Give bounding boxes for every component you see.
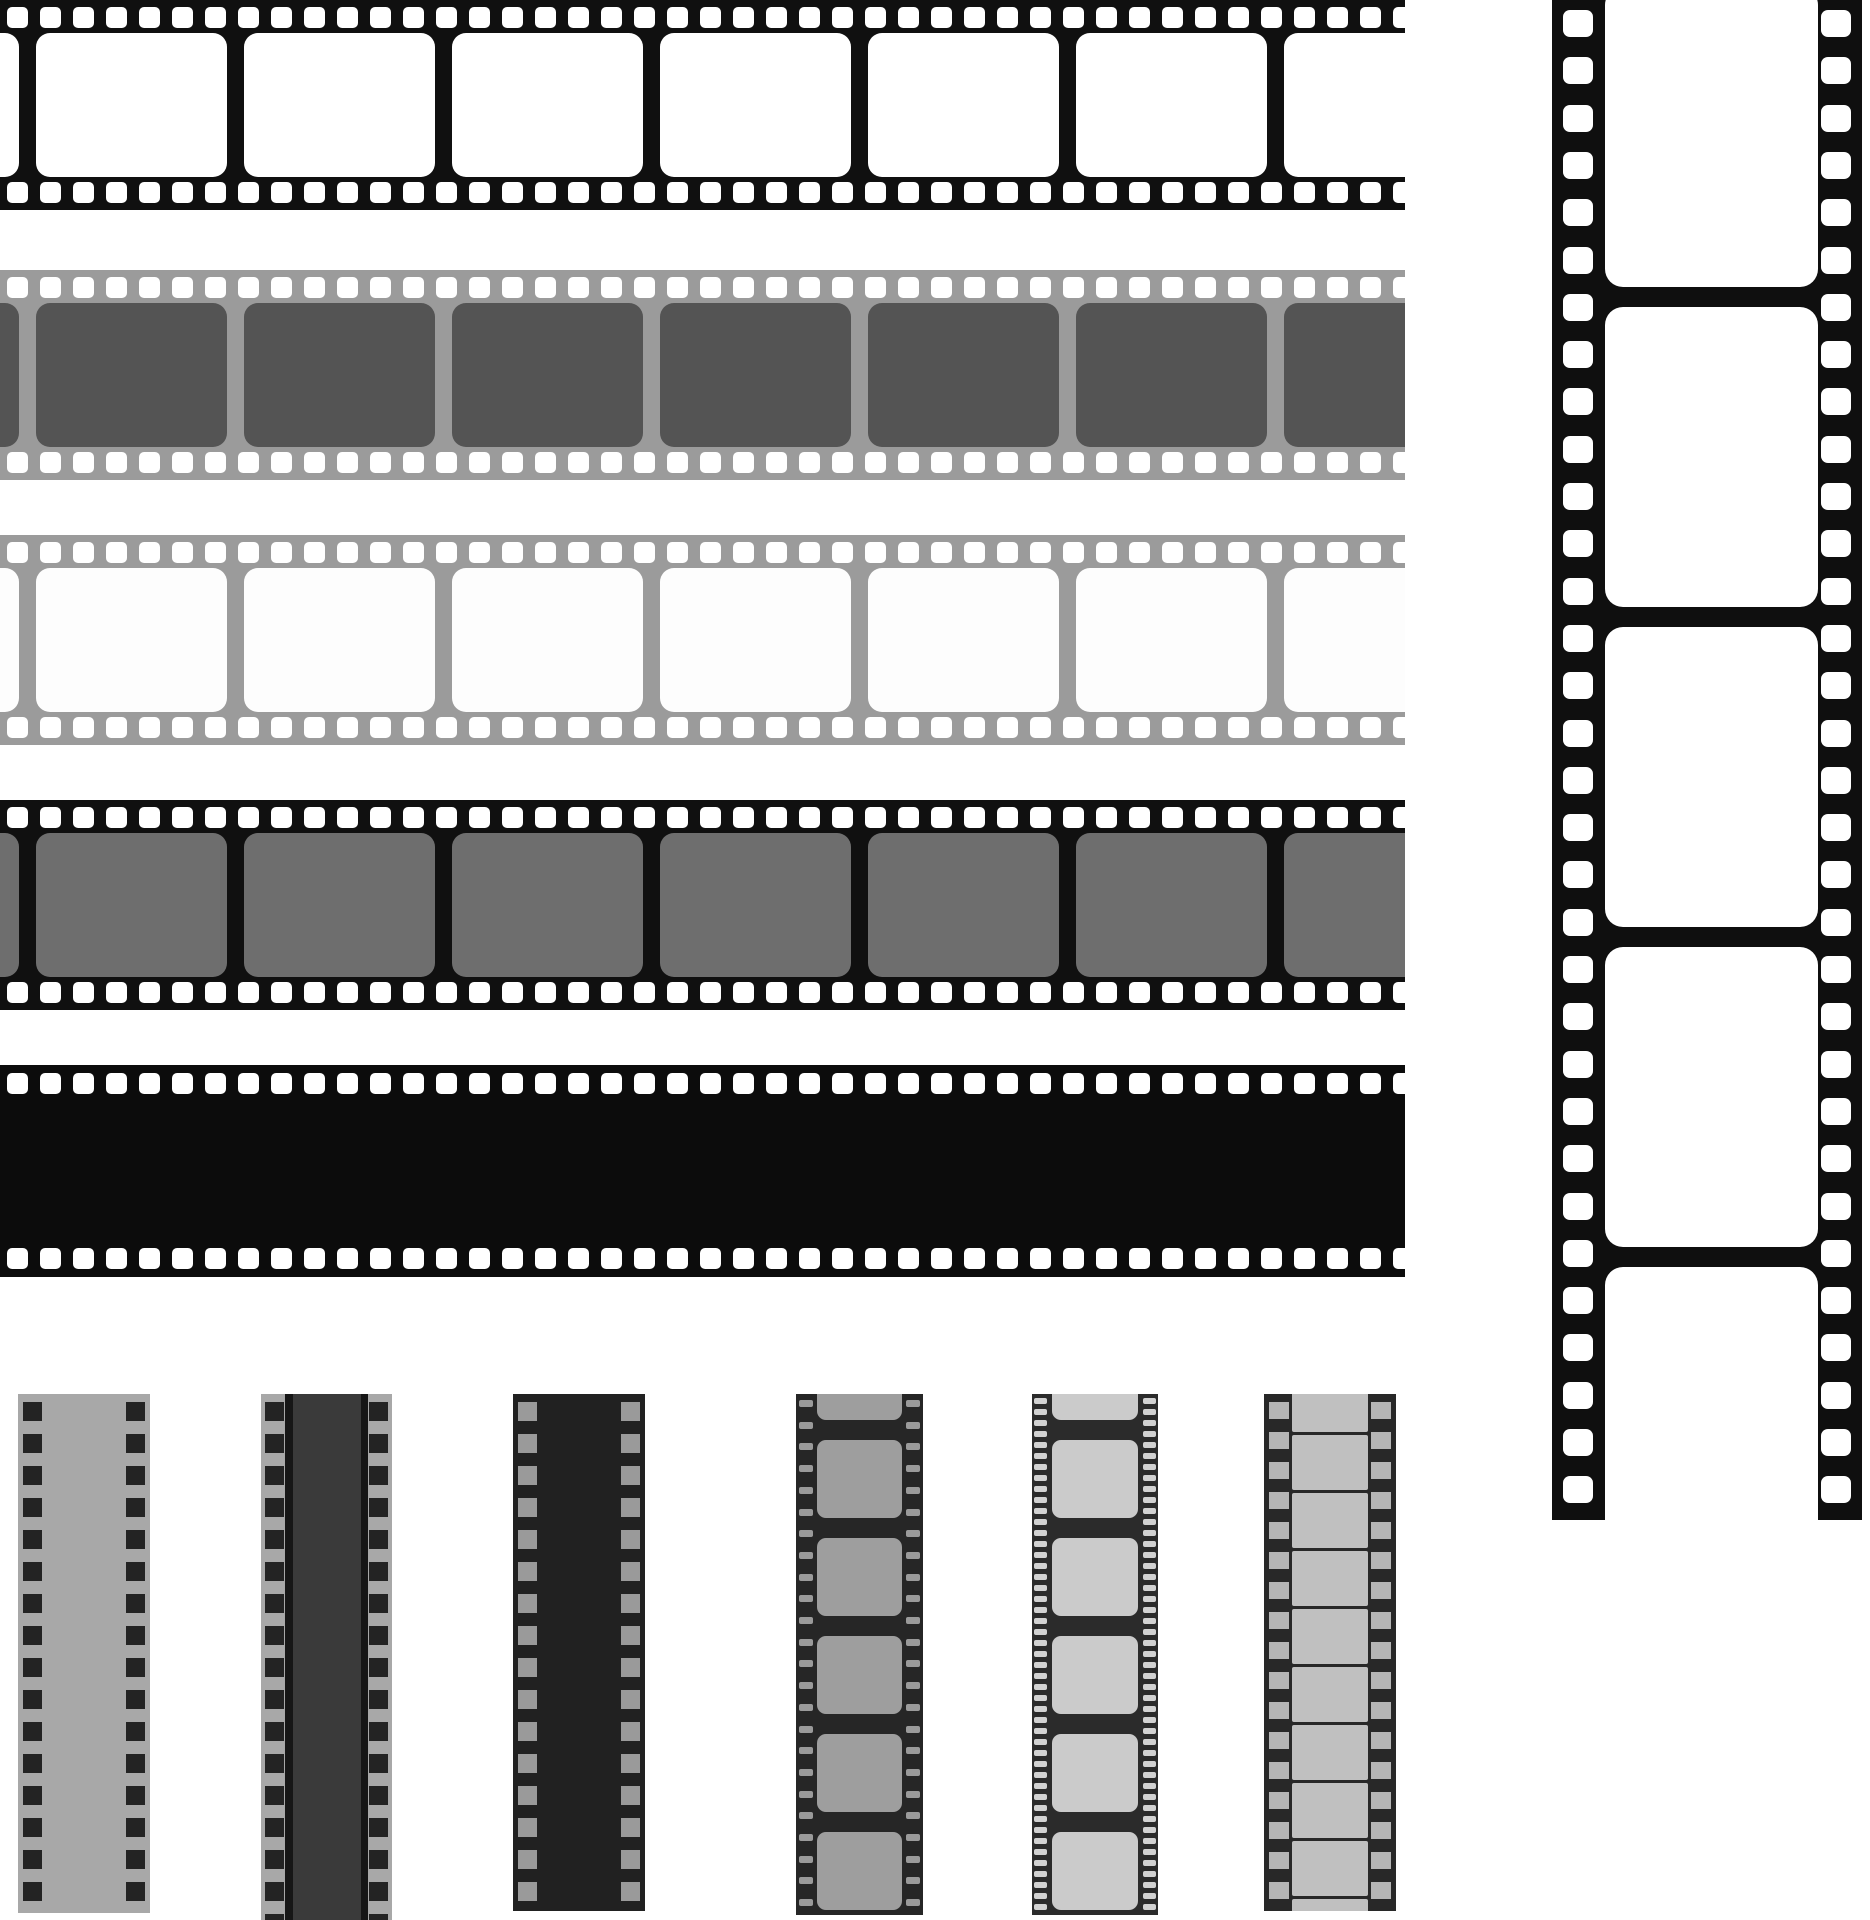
film-perforation: [1294, 1248, 1315, 1269]
film-perforation: [1371, 1492, 1391, 1509]
film-perforation: [1096, 452, 1117, 473]
film-perforation: [1143, 1651, 1156, 1657]
film-perforation: [1563, 530, 1593, 557]
film-perforation: [667, 982, 688, 1003]
film-perforation: [1294, 542, 1315, 563]
film-perforation: [535, 1248, 556, 1269]
film-perforation: [1821, 578, 1851, 605]
film-perforation: [238, 542, 259, 563]
film-perforation: [369, 1658, 388, 1677]
film-perforation: [1034, 1629, 1047, 1635]
film-perforation: [906, 1726, 920, 1733]
film-perforation: [1143, 1662, 1156, 1668]
film-perforation: [1063, 452, 1084, 473]
film-perforation: [502, 982, 523, 1003]
film-perforation: [1034, 1497, 1047, 1503]
film-perforation: [1563, 1476, 1593, 1503]
film-perforation: [1096, 982, 1117, 1003]
film-perforation: [469, 7, 490, 28]
film-perforation: [601, 807, 622, 828]
film-perforation: [1162, 452, 1183, 473]
film-perforation: [265, 1786, 284, 1805]
film-strip-small-gray-solid: [18, 1394, 150, 1913]
film-perforation: [172, 452, 193, 473]
film-perforation: [1162, 807, 1183, 828]
film-perforation: [621, 1786, 640, 1805]
film-frame: [1605, 627, 1818, 927]
film-perforation: [1030, 1073, 1051, 1094]
film-perforation: [1129, 542, 1150, 563]
film-perforation: [106, 182, 127, 203]
film-perforation: [1821, 861, 1851, 888]
film-frame: [868, 833, 1059, 977]
film-perforation: [1030, 182, 1051, 203]
film-perforation: [931, 182, 952, 203]
film-perforation: [304, 1073, 325, 1094]
film-perforation: [1034, 1607, 1047, 1613]
film-strip-small-gray-dark-band: [261, 1394, 392, 1920]
film-perforation: [799, 452, 820, 473]
film-perforation: [1371, 1612, 1391, 1629]
film-perforation: [172, 277, 193, 298]
film-perforation: [621, 1466, 640, 1485]
film-perforation: [1034, 1464, 1047, 1470]
film-perforation: [1129, 1073, 1150, 1094]
film-perforation: [518, 1882, 537, 1901]
film-perforation: [1034, 1816, 1047, 1822]
film-perforation: [1143, 1882, 1156, 1888]
film-perforation: [205, 982, 226, 1003]
film-perforation: [1371, 1432, 1391, 1449]
film-perforation: [1371, 1672, 1391, 1689]
film-perforation: [799, 7, 820, 28]
film-perforation: [1563, 1287, 1593, 1314]
film-perforation: [1096, 542, 1117, 563]
film-perforation: [1228, 1073, 1249, 1094]
film-perforation: [370, 807, 391, 828]
film-perforation: [1143, 1508, 1156, 1514]
film-perforation: [601, 7, 622, 28]
film-perforation: [40, 807, 61, 828]
film-perforation: [832, 277, 853, 298]
film-perforation: [126, 1530, 145, 1549]
film-perforation: [568, 542, 589, 563]
film-perforation: [1034, 1596, 1047, 1602]
film-perforation: [7, 182, 28, 203]
film-perforation: [906, 1682, 920, 1689]
film-perforation: [634, 982, 655, 1003]
film-perforation: [832, 807, 853, 828]
film-perforation: [621, 1658, 640, 1677]
film-perforation: [1063, 542, 1084, 563]
film-perforation: [964, 542, 985, 563]
film-perforation: [898, 182, 919, 203]
film-perforation: [906, 1617, 920, 1624]
film-perforation: [733, 982, 754, 1003]
film-perforation: [469, 182, 490, 203]
film-perforation: [1261, 1073, 1282, 1094]
film-perforation: [238, 1248, 259, 1269]
film-perforation: [733, 7, 754, 28]
film-perforation: [799, 1812, 813, 1819]
film-perforation: [1821, 436, 1851, 463]
film-perforation: [1143, 1431, 1156, 1437]
film-strips-illustration: [0, 0, 1870, 1920]
film-perforation: [502, 182, 523, 203]
film-frame: [1076, 33, 1267, 177]
film-perforation: [898, 1073, 919, 1094]
film-frame: [0, 568, 19, 712]
film-perforation: [1162, 1073, 1183, 1094]
film-perforation: [271, 182, 292, 203]
film-perforation: [1034, 1442, 1047, 1448]
film-perforation: [271, 452, 292, 473]
film-perforation: [906, 1747, 920, 1754]
film-perforation: [1371, 1462, 1391, 1479]
film-perforation: [1371, 1642, 1391, 1659]
film-perforation: [370, 542, 391, 563]
film-perforation: [1034, 1574, 1047, 1580]
film-perforation: [304, 182, 325, 203]
film-perforation: [1228, 542, 1249, 563]
film-perforation: [265, 1882, 284, 1901]
film-perforation: [370, 982, 391, 1003]
film-perforation: [906, 1791, 920, 1798]
film-perforation: [997, 542, 1018, 563]
film-perforation: [403, 717, 424, 738]
film-perforation: [832, 1248, 853, 1269]
film-perforation: [139, 7, 160, 28]
film-perforation: [1034, 1871, 1047, 1877]
film-perforation: [1327, 182, 1348, 203]
film-frame: [1076, 303, 1267, 447]
film-perforation: [1162, 542, 1183, 563]
film-perforation: [271, 807, 292, 828]
film-perforation: [126, 1722, 145, 1741]
film-perforation: [1228, 277, 1249, 298]
film-perforation: [1143, 1805, 1156, 1811]
film-perforation: [964, 7, 985, 28]
film-frame: [660, 568, 851, 712]
film-perforation: [126, 1594, 145, 1613]
film-frame: [1052, 1538, 1138, 1616]
film-frame: [36, 833, 227, 977]
film-perforation: [799, 1530, 813, 1537]
film-center-band: [361, 1394, 368, 1920]
film-perforation: [1143, 1640, 1156, 1646]
film-frame: [1292, 1394, 1368, 1432]
film-perforation: [7, 1248, 28, 1269]
film-perforation: [1129, 717, 1150, 738]
film-perforation: [337, 1248, 358, 1269]
film-perforation: [601, 1248, 622, 1269]
film-perforation: [436, 277, 457, 298]
film-perforation: [906, 1899, 920, 1906]
film-strip-horizontal-black-white-frames: [0, 0, 1405, 210]
film-perforation: [518, 1498, 537, 1517]
film-perforation: [238, 277, 259, 298]
film-perforation: [832, 982, 853, 1003]
film-perforation: [1034, 1695, 1047, 1701]
film-perforation: [436, 542, 457, 563]
film-perforation: [700, 982, 721, 1003]
film-perforation: [370, 452, 391, 473]
film-perforation: [1063, 1248, 1084, 1269]
film-perforation: [7, 982, 28, 1003]
film-perforation: [139, 452, 160, 473]
film-perforation: [518, 1594, 537, 1613]
film-perforation: [205, 1073, 226, 1094]
film-perforation: [1563, 1382, 1593, 1409]
film-perforation: [667, 717, 688, 738]
film-perforation: [1143, 1871, 1156, 1877]
film-frame: [0, 833, 19, 977]
film-frame: [868, 568, 1059, 712]
film-perforation: [601, 277, 622, 298]
film-perforation: [502, 1073, 523, 1094]
film-perforation: [436, 182, 457, 203]
film-perforation: [1034, 1805, 1047, 1811]
film-frame: [1292, 1783, 1368, 1838]
film-frame: [1292, 1435, 1368, 1490]
film-frame: [1292, 1841, 1368, 1896]
film-perforation: [906, 1834, 920, 1841]
film-perforation: [1129, 982, 1150, 1003]
film-perforation: [1563, 1098, 1593, 1125]
film-perforation: [832, 7, 853, 28]
film-perforation: [205, 182, 226, 203]
film-perforation: [799, 1552, 813, 1559]
film-perforation: [1143, 1772, 1156, 1778]
film-perforation: [23, 1530, 42, 1549]
film-perforation: [518, 1530, 537, 1549]
film-perforation: [1393, 277, 1405, 298]
film-perforation: [1143, 1827, 1156, 1833]
film-frame: [1292, 1551, 1368, 1606]
film-perforation: [370, 1248, 391, 1269]
film-frame: [817, 1734, 902, 1812]
film-perforation: [1143, 1860, 1156, 1866]
film-perforation: [1129, 1248, 1150, 1269]
film-perforation: [601, 452, 622, 473]
film-perforation: [23, 1658, 42, 1677]
film-perforation: [1371, 1882, 1391, 1899]
film-perforation: [1821, 1051, 1851, 1078]
film-perforation: [172, 7, 193, 28]
film-perforation: [997, 982, 1018, 1003]
film-perforation: [1327, 717, 1348, 738]
film-perforation: [1034, 1409, 1047, 1415]
film-perforation: [1269, 1702, 1289, 1719]
film-perforation: [1261, 182, 1282, 203]
film-perforation: [139, 277, 160, 298]
film-perforation: [1063, 7, 1084, 28]
film-frame: [1284, 33, 1405, 177]
film-perforation: [403, 1073, 424, 1094]
film-perforation: [1143, 1684, 1156, 1690]
film-perforation: [898, 717, 919, 738]
film-frame: [1076, 568, 1267, 712]
film-perforation: [369, 1818, 388, 1837]
film-perforation: [369, 1722, 388, 1741]
film-perforation: [997, 277, 1018, 298]
film-perforation: [799, 1443, 813, 1450]
film-perforation: [1327, 7, 1348, 28]
film-perforation: [1261, 452, 1282, 473]
film-perforation: [23, 1818, 42, 1837]
film-perforation: [1821, 1145, 1851, 1172]
film-perforation: [265, 1626, 284, 1645]
film-frame: [1284, 568, 1405, 712]
film-perforation: [23, 1690, 42, 1709]
film-perforation: [271, 7, 292, 28]
film-perforation: [634, 452, 655, 473]
film-perforation: [369, 1594, 388, 1613]
film-frame: [1052, 1832, 1138, 1910]
film-perforation: [667, 452, 688, 473]
film-perforation: [337, 982, 358, 1003]
film-perforation: [172, 717, 193, 738]
film-perforation: [1096, 182, 1117, 203]
film-perforation: [1030, 542, 1051, 563]
film-perforation: [403, 982, 424, 1003]
film-perforation: [1821, 720, 1851, 747]
film-perforation: [23, 1402, 42, 1421]
film-perforation: [436, 807, 457, 828]
film-perforation: [634, 277, 655, 298]
film-perforation: [1393, 542, 1405, 563]
film-perforation: [931, 982, 952, 1003]
film-perforation: [73, 542, 94, 563]
film-perforation: [518, 1658, 537, 1677]
film-perforation: [1563, 1240, 1593, 1267]
film-perforation: [502, 7, 523, 28]
film-perforation: [634, 717, 655, 738]
film-perforation: [1563, 814, 1593, 841]
film-perforation: [733, 277, 754, 298]
film-frame: [452, 833, 643, 977]
film-perforation: [106, 7, 127, 28]
film-perforation: [436, 7, 457, 28]
film-perforation: [799, 1726, 813, 1733]
film-perforation: [1228, 807, 1249, 828]
film-frame: [36, 568, 227, 712]
film-perforation: [1821, 483, 1851, 510]
film-perforation: [40, 982, 61, 1003]
film-perforation: [337, 182, 358, 203]
film-perforation: [265, 1402, 284, 1421]
film-perforation: [1143, 1464, 1156, 1470]
film-frame: [452, 303, 643, 447]
film-perforation: [535, 807, 556, 828]
film-perforation: [906, 1639, 920, 1646]
film-perforation: [1143, 1893, 1156, 1899]
film-perforation: [1034, 1761, 1047, 1767]
film-perforation: [436, 1073, 457, 1094]
film-perforation: [1269, 1582, 1289, 1599]
film-perforation: [1563, 956, 1593, 983]
film-perforation: [1129, 277, 1150, 298]
film-center-band: [285, 1394, 293, 1920]
film-perforation: [1195, 807, 1216, 828]
film-perforation: [667, 182, 688, 203]
film-perforation: [1129, 452, 1150, 473]
film-perforation: [23, 1626, 42, 1645]
film-perforation: [799, 1769, 813, 1776]
film-perforation: [403, 277, 424, 298]
film-perforation: [139, 182, 160, 203]
film-perforation: [271, 1073, 292, 1094]
film-perforation: [1360, 542, 1381, 563]
film-perforation: [369, 1786, 388, 1805]
film-perforation: [1821, 1287, 1851, 1314]
film-frame: [0, 303, 19, 447]
film-perforation: [23, 1850, 42, 1869]
film-perforation: [1096, 277, 1117, 298]
film-perforation: [1034, 1453, 1047, 1459]
film-perforation: [865, 7, 886, 28]
film-perforation: [799, 1682, 813, 1689]
film-perforation: [238, 7, 259, 28]
film-perforation: [403, 7, 424, 28]
film-perforation: [1261, 807, 1282, 828]
film-perforation: [906, 1704, 920, 1711]
film-frame: [1284, 833, 1405, 977]
film-perforation: [337, 717, 358, 738]
film-strip-small-stacked-light-frames: [1264, 1394, 1396, 1911]
film-perforation: [799, 1422, 813, 1429]
film-perforation: [1143, 1739, 1156, 1745]
film-perforation: [601, 717, 622, 738]
film-perforation: [265, 1754, 284, 1773]
film-perforation: [1034, 1651, 1047, 1657]
film-perforation: [997, 807, 1018, 828]
film-perforation: [23, 1882, 42, 1901]
film-perforation: [23, 1786, 42, 1805]
film-perforation: [568, 1073, 589, 1094]
film-frame: [1292, 1725, 1368, 1780]
film-perforation: [271, 542, 292, 563]
film-perforation: [1096, 7, 1117, 28]
film-perforation: [1143, 1838, 1156, 1844]
film-perforation: [865, 717, 886, 738]
film-perforation: [1269, 1432, 1289, 1449]
film-perforation: [1143, 1750, 1156, 1756]
film-perforation: [535, 277, 556, 298]
film-perforation: [126, 1818, 145, 1837]
film-frame: [0, 33, 19, 177]
film-perforation: [1143, 1519, 1156, 1525]
film-perforation: [1143, 1904, 1156, 1910]
film-perforation: [568, 452, 589, 473]
film-perforation: [931, 452, 952, 473]
film-perforation: [436, 452, 457, 473]
film-perforation: [906, 1487, 920, 1494]
film-perforation: [1063, 982, 1084, 1003]
film-perforation: [601, 182, 622, 203]
film-perforation: [1269, 1642, 1289, 1659]
film-perforation: [40, 7, 61, 28]
film-perforation: [265, 1658, 284, 1677]
film-perforation: [1143, 1728, 1156, 1734]
film-perforation: [700, 1248, 721, 1269]
film-perforation: [126, 1402, 145, 1421]
film-perforation: [23, 1498, 42, 1517]
film-perforation: [1393, 717, 1405, 738]
film-perforation: [1821, 247, 1851, 274]
film-perforation: [799, 1073, 820, 1094]
film-perforation: [1143, 1816, 1156, 1822]
